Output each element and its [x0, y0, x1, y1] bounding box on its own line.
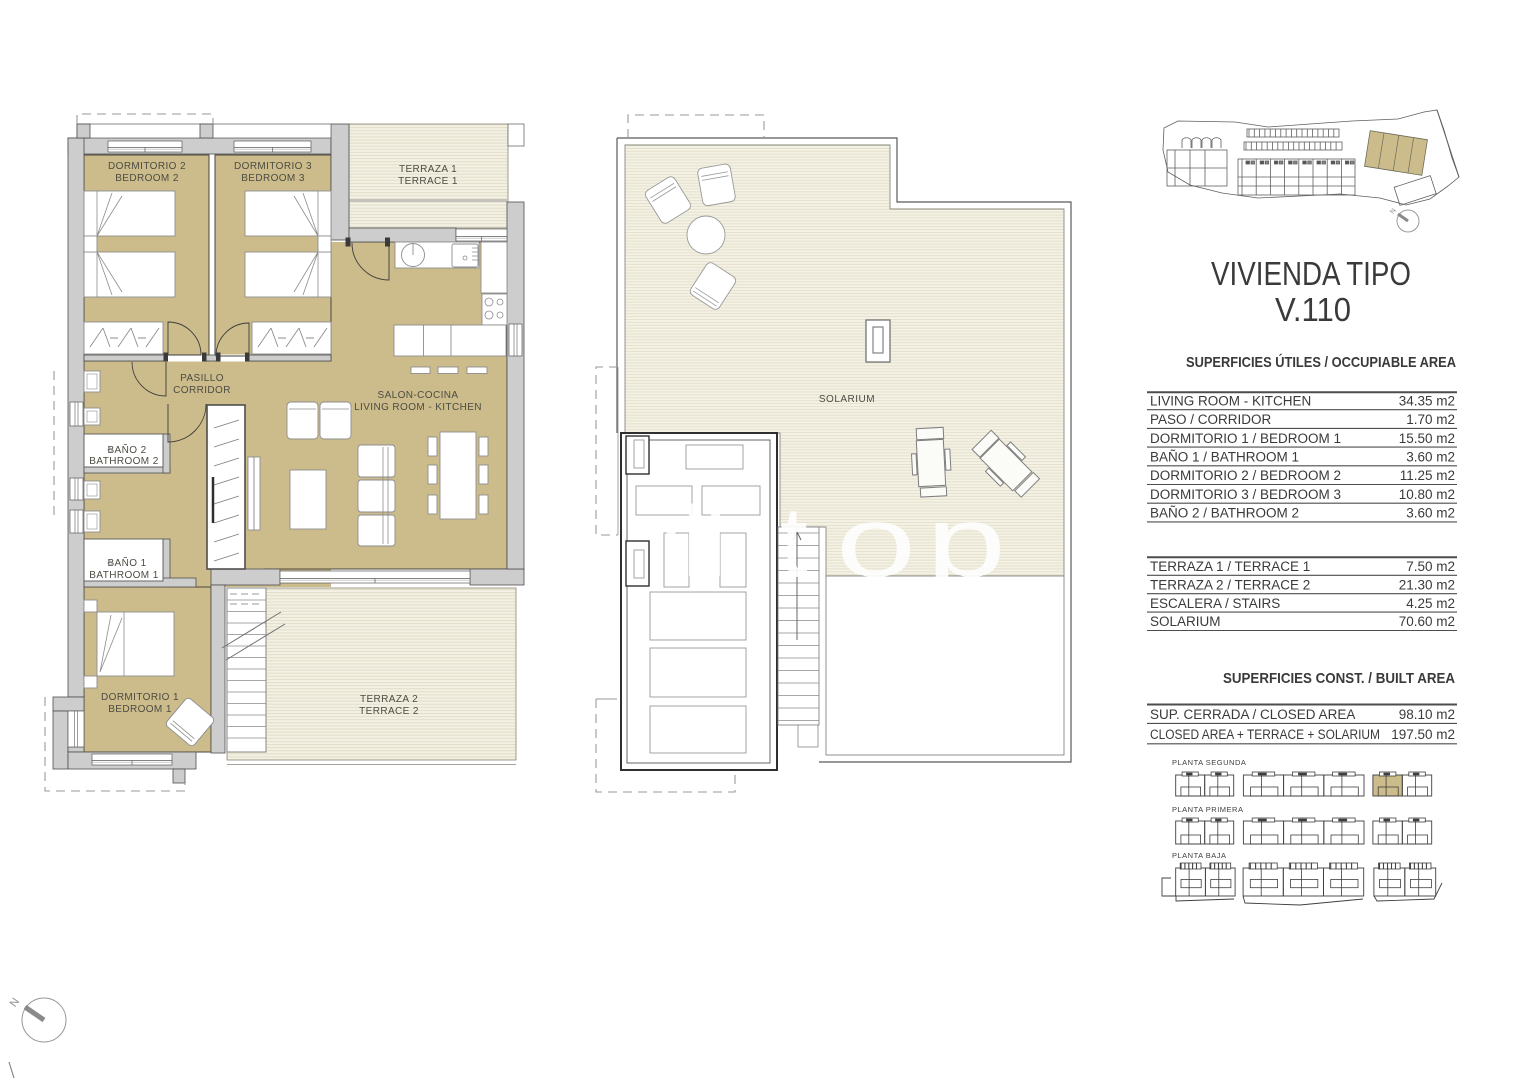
svg-text:BAÑO 2: BAÑO 2	[107, 443, 146, 456]
svg-text:PLANTA PRIMERA: PLANTA PRIMERA	[1172, 805, 1243, 814]
svg-text:DORMITORIO 3 / BEDROOM 3: DORMITORIO 3 / BEDROOM 3	[1150, 487, 1341, 502]
svg-text:TERRAZA 2 / TERRACE 2: TERRAZA 2 / TERRACE 2	[1150, 577, 1310, 592]
svg-text:15.50 m2: 15.50 m2	[1399, 431, 1455, 446]
svg-text:SOLARIUM: SOLARIUM	[1150, 614, 1221, 629]
svg-text:CLOSED AREA + TERRACE + SOLARI: CLOSED AREA + TERRACE + SOLARIUM	[1150, 727, 1380, 742]
svg-text:DORMITORIO 2 / BEDROOM 2: DORMITORIO 2 / BEDROOM 2	[1150, 468, 1341, 483]
svg-text:TERRAZA 1 / TERRACE 1: TERRAZA 1 / TERRACE 1	[1150, 559, 1310, 574]
svg-text:SUPERFICIES CONST. / BUILT AR: SUPERFICIES CONST. / BUILT AREA	[1223, 670, 1455, 687]
svg-text:3.60 m2: 3.60 m2	[1406, 506, 1455, 521]
svg-text:4.25 m2: 4.25 m2	[1406, 596, 1455, 611]
svg-text:10.80 m2: 10.80 m2	[1399, 487, 1455, 502]
svg-text:BEDROOM 2: BEDROOM 2	[115, 173, 179, 184]
svg-text:1.70 m2: 1.70 m2	[1406, 412, 1455, 427]
svg-text:t: t	[780, 486, 808, 598]
svg-text:70.60 m2: 70.60 m2	[1399, 614, 1455, 629]
svg-text:BEDROOM 1: BEDROOM 1	[108, 704, 172, 715]
svg-text:BEDROOM 3: BEDROOM 3	[241, 173, 305, 184]
svg-text:PLANTA BAJA: PLANTA BAJA	[1172, 851, 1227, 860]
svg-text:ESCALERA / STAIRS: ESCALERA / STAIRS	[1150, 596, 1280, 611]
svg-text:SUPERFICIES ÚTILES / OCCUPIABL: SUPERFICIES ÚTILES / OCCUPIABLE AREA	[1186, 353, 1456, 371]
svg-text:PLANTA SEGUNDA: PLANTA SEGUNDA	[1172, 758, 1246, 767]
svg-text:BAÑO 1: BAÑO 1	[107, 556, 146, 569]
svg-text:VIVIENDA TIPO: VIVIENDA TIPO	[1211, 255, 1411, 292]
svg-text:7.50 m2: 7.50 m2	[1406, 559, 1455, 574]
svg-text:DORMITORIO 3: DORMITORIO 3	[234, 161, 312, 172]
svg-text:TERRACE 1: TERRACE 1	[398, 176, 458, 187]
svg-text:BAÑO 1 / BATHROOM 1: BAÑO 1 / BATHROOM 1	[1150, 450, 1299, 465]
svg-text:DORMITORIO 2: DORMITORIO 2	[108, 161, 186, 172]
svg-text:TERRAZA 2: TERRAZA 2	[360, 694, 418, 705]
svg-text:21.30 m2: 21.30 m2	[1399, 577, 1455, 592]
svg-text:3.60 m2: 3.60 m2	[1406, 450, 1455, 465]
svg-text:LIVING ROOM - KITCHEN: LIVING ROOM - KITCHEN	[354, 402, 482, 413]
svg-text:DORMITORIO 1: DORMITORIO 1	[101, 692, 179, 703]
svg-text:BATHROOM 1: BATHROOM 1	[89, 570, 158, 581]
svg-text:BATHROOM 2: BATHROOM 2	[89, 456, 158, 467]
svg-text:DORMITORIO 1 / BEDROOM 1: DORMITORIO 1 / BEDROOM 1	[1150, 431, 1341, 446]
svg-text:ill: ill	[660, 486, 727, 598]
svg-text:PASILLO: PASILLO	[180, 373, 224, 384]
svg-text:98.10 m2: 98.10 m2	[1399, 707, 1455, 722]
svg-text:SUP. CERRADA / CLOSED AREA: SUP. CERRADA / CLOSED AREA	[1150, 707, 1355, 722]
svg-text:V.110: V.110	[1275, 291, 1351, 328]
svg-text:o: o	[836, 486, 916, 598]
svg-text:197.50 m2: 197.50 m2	[1391, 727, 1455, 742]
svg-text:PASO / CORRIDOR: PASO / CORRIDOR	[1150, 412, 1272, 427]
svg-text:p: p	[926, 486, 1006, 598]
svg-text:CORRIDOR: CORRIDOR	[173, 385, 231, 396]
svg-text:TERRAZA 1: TERRAZA 1	[399, 164, 457, 175]
svg-text:SALON-COCINA: SALON-COCINA	[378, 390, 459, 401]
svg-text:LIVING ROOM - KITCHEN: LIVING ROOM - KITCHEN	[1150, 393, 1311, 408]
svg-text:BAÑO 2 / BATHROOM 2: BAÑO 2 / BATHROOM 2	[1150, 506, 1299, 521]
svg-text:TERRACE 2: TERRACE 2	[359, 706, 419, 717]
svg-text:SOLARIUM: SOLARIUM	[819, 394, 875, 405]
svg-text:11.25 m2: 11.25 m2	[1400, 468, 1455, 483]
svg-text:34.35 m2: 34.35 m2	[1399, 393, 1455, 408]
